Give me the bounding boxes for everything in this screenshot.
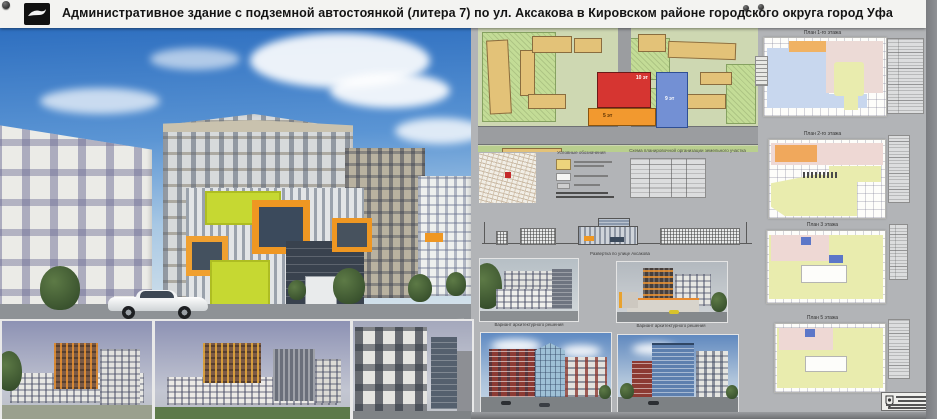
elevation-building — [660, 228, 740, 245]
legend-text-line — [574, 175, 608, 177]
designed-building-main: 10 эт — [597, 72, 651, 108]
header-bar: Административное здание с подземной авто… — [0, 0, 926, 28]
legend-swatch-road — [557, 183, 570, 189]
stamp-text-line — [898, 400, 926, 402]
orange-accent-far — [425, 233, 443, 242]
variant-thumb-3 — [351, 319, 474, 419]
end-marker — [746, 222, 747, 243]
ufa-emblem-logo — [24, 3, 50, 25]
lime-panel-lower — [210, 260, 270, 308]
orange-frame-right — [332, 218, 372, 252]
floors-label-podium: 5 эт — [603, 114, 612, 119]
floor-plan-3 — [766, 230, 886, 304]
legend-swatch-designed — [556, 173, 571, 181]
existing-building — [528, 94, 566, 109]
cloud — [150, 48, 240, 70]
variant-thumb-2 — [153, 319, 352, 419]
variant-render-3 — [480, 332, 612, 415]
elevation-caption: Развертка по улице Аксакова — [560, 251, 680, 256]
photo-edge-right — [926, 0, 937, 419]
plan-zone-blue-core — [801, 237, 811, 245]
plan-zone-yellow — [834, 62, 864, 96]
floor-plan-1-title: План 1-го этажа — [775, 30, 870, 36]
stamp-text-line — [896, 396, 928, 398]
plan-zone-blue-core — [805, 329, 815, 337]
photo-edge-bottom — [471, 412, 926, 419]
tree — [288, 280, 306, 300]
plan-zone-pink — [771, 235, 829, 261]
variant-caption-2: Вариант архитектурного решения — [624, 323, 718, 328]
situational-map — [479, 153, 536, 203]
existing-building — [668, 41, 737, 60]
elevation-dark-accent — [610, 237, 624, 242]
side-section-sketch — [755, 56, 768, 86]
cloud — [395, 118, 471, 144]
room-schedule-2 — [888, 135, 910, 203]
existing-building — [700, 72, 732, 85]
road-main — [478, 126, 758, 145]
plan-zone-blue-core — [829, 255, 843, 263]
designed-building-tower: 9 эт — [656, 72, 688, 128]
presentation-board-photo: 10 эт 5 эт 9 эт Условные обозначения Схе… — [0, 0, 937, 419]
existing-building — [574, 38, 602, 53]
plan-courtyard — [805, 356, 847, 372]
designed-building-podium: 5 эт — [588, 108, 656, 126]
elevation-orange-accent — [584, 236, 594, 241]
floor-plan-4 — [774, 323, 886, 393]
sports-car — [108, 288, 208, 318]
plan-zone-yellow — [844, 94, 858, 110]
main-perspective-rendering — [0, 28, 471, 319]
stamp-text-line — [886, 404, 928, 406]
street-elevation — [480, 214, 754, 250]
board-title: Административное здание с подземной авто… — [62, 6, 893, 20]
floor-plan-2 — [768, 139, 886, 219]
push-pin — [2, 1, 10, 9]
push-pin — [743, 5, 749, 11]
marten-icon — [24, 3, 50, 25]
variant-caption-1: Вариант архитектурного решения — [482, 322, 576, 327]
room-schedule-4 — [888, 319, 910, 379]
cloud — [40, 88, 160, 114]
plan-stairs — [803, 172, 837, 178]
end-marker — [484, 222, 485, 243]
floor-plan-4-title: План 5 этажа — [775, 315, 870, 321]
tree — [333, 268, 365, 304]
existing-building — [638, 34, 666, 52]
elevation-building — [520, 228, 556, 245]
stamp-text-line — [888, 407, 926, 409]
site-plan-caption: Схема планировочной организации земельно… — [625, 148, 750, 153]
floor-plan-1 — [763, 37, 887, 117]
existing-building — [532, 36, 572, 53]
variant-render-2 — [616, 261, 728, 323]
room-schedule-3 — [889, 224, 908, 280]
floors-label-main: 10 эт — [636, 76, 648, 81]
push-pin — [758, 4, 764, 10]
variant-render-1 — [479, 258, 579, 322]
plan-courtyard — [801, 265, 847, 283]
variant-thumb-1 — [0, 319, 154, 419]
existing-building — [520, 50, 535, 96]
tree — [446, 272, 466, 296]
floor-plan-3-title: План 3 этажа — [775, 222, 870, 228]
elevation-building — [496, 231, 508, 245]
floor-plan-2-title: План 2-го этажа — [775, 131, 870, 137]
floors-label-tower: 9 эт — [665, 97, 674, 102]
legend-swatch-existing — [556, 159, 571, 170]
variant-render-4 — [617, 334, 739, 415]
room-schedule-1 — [887, 38, 924, 114]
tep-table — [630, 158, 706, 198]
plan-zone-blue — [767, 48, 829, 94]
tree — [40, 266, 80, 310]
legend-text-line — [574, 184, 600, 186]
plan-zone-orange — [775, 145, 817, 162]
legend-text-line — [574, 165, 604, 167]
cloud — [330, 73, 450, 108]
site-plan: 10 эт 5 эт 9 эт — [478, 28, 758, 152]
existing-building — [486, 39, 512, 114]
site-marker — [505, 172, 511, 178]
legend-note-line — [556, 192, 608, 194]
legend-note-line — [556, 196, 614, 198]
legend-text-line — [574, 161, 612, 163]
legend-title: Условные обозначения — [557, 150, 606, 155]
legend: Условные обозначения — [551, 150, 623, 200]
tree — [408, 274, 432, 302]
